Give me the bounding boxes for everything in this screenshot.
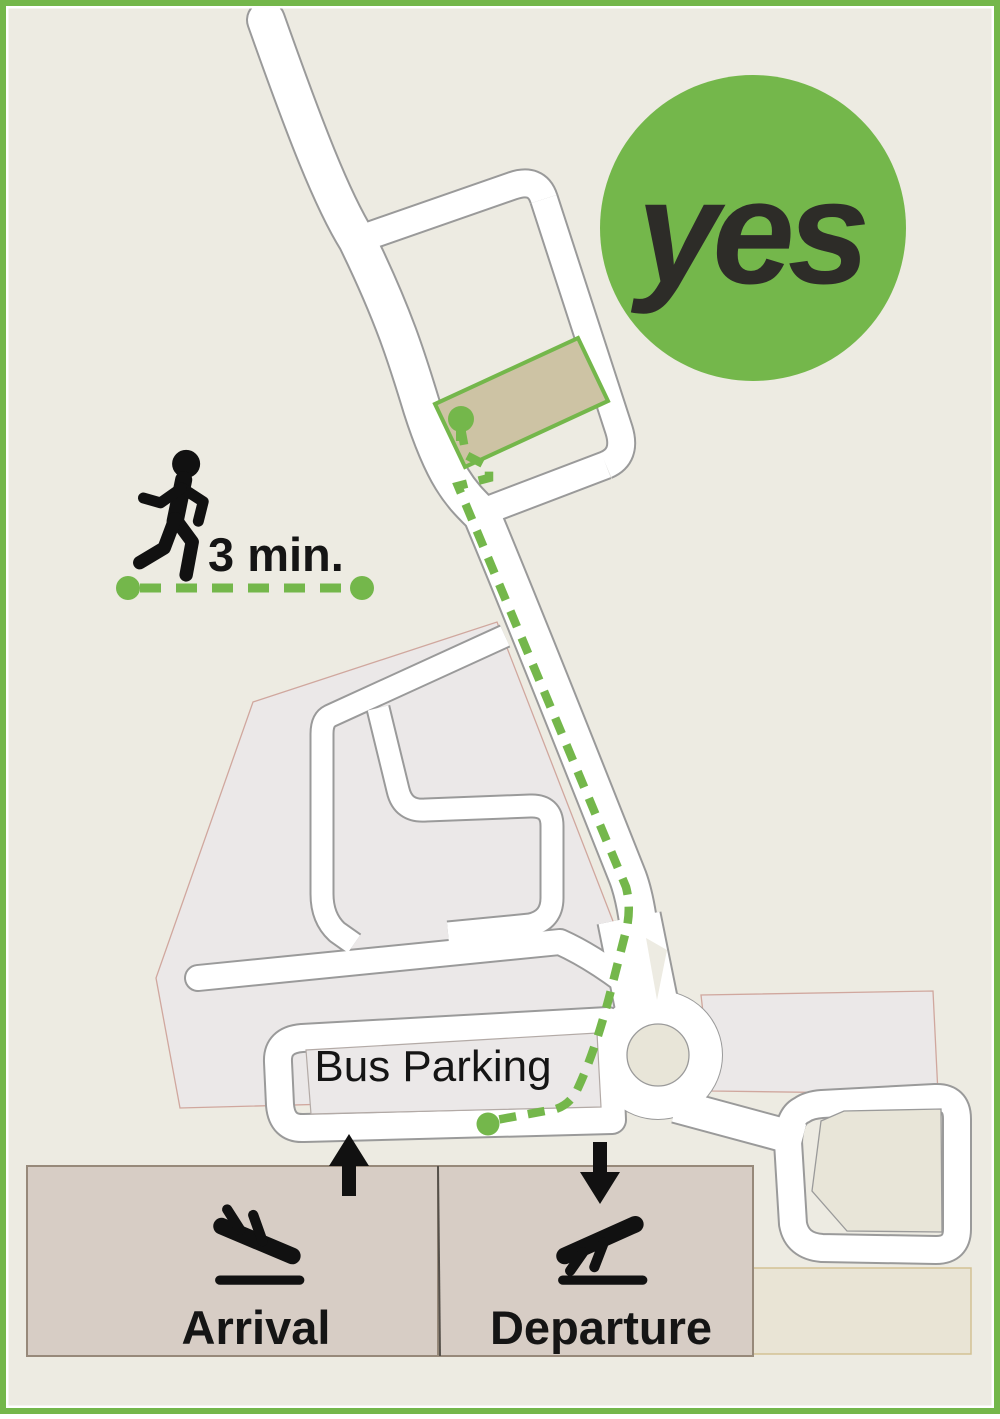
airport-walking-map: Bus Parking Arrival Departure — [0, 0, 1000, 1414]
roundabout-island — [627, 1024, 689, 1086]
yes-logo: yes — [600, 75, 906, 381]
east-area-polygon — [701, 991, 938, 1094]
map-canvas: Bus Parking Arrival Departure — [0, 0, 1000, 1414]
bus-parking-label: Bus Parking — [314, 1042, 551, 1091]
route-start-dot — [477, 1113, 500, 1136]
departure-label: Departure — [490, 1301, 712, 1354]
terminal-loop-island — [812, 1109, 942, 1232]
walk-time-label: 3 min. — [208, 528, 344, 581]
logo-text: yes — [630, 150, 866, 315]
arrival-label: Arrival — [182, 1301, 331, 1354]
terminal-buildings: Arrival Departure — [27, 1134, 753, 1356]
apron-area — [753, 1268, 971, 1354]
